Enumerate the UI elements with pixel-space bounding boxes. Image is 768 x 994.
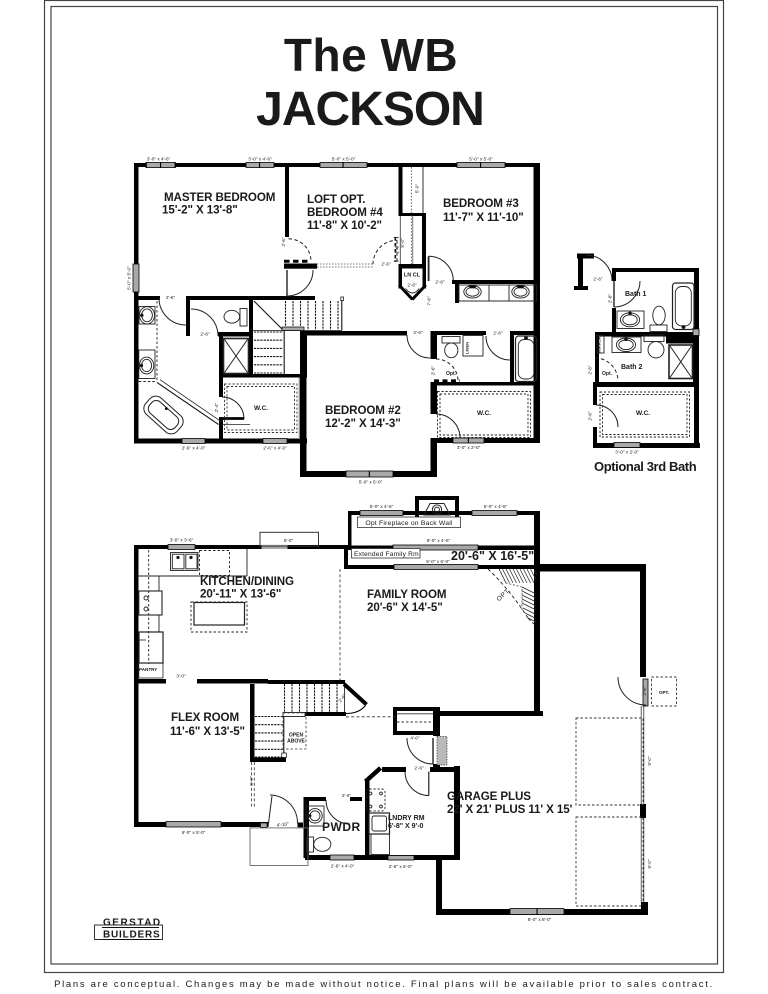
svg-text:20'-6" X 16'-5": 20'-6" X 16'-5" <box>451 549 534 563</box>
svg-text:BEDROOM #3: BEDROOM #3 <box>443 197 519 210</box>
svg-text:6'-0" x 5'-0": 6'-0" x 5'-0" <box>182 830 206 835</box>
svg-text:2'-6": 2'-6" <box>381 262 391 267</box>
svg-text:3'-0" x 4'-6": 3'-0" x 4'-6" <box>147 157 171 162</box>
svg-text:Bath 1: Bath 1 <box>625 291 647 298</box>
svg-text:2'-6": 2'-6" <box>493 331 503 336</box>
svg-text:2'-6": 2'-6" <box>281 237 286 247</box>
svg-text:5'-0" x 4'-6": 5'-0" x 4'-6" <box>484 504 508 509</box>
svg-text:3'-0": 3'-0" <box>176 674 186 679</box>
svg-text:20'-6" X 14'-5": 20'-6" X 14'-5" <box>367 601 443 614</box>
svg-text:3'-0" x 2'-0": 3'-0" x 2'-0" <box>457 445 481 450</box>
svg-text:5'-0" x 4'-6": 5'-0" x 4'-6" <box>370 504 394 509</box>
svg-text:2'-6": 2'-6" <box>413 330 423 335</box>
svg-text:2'-6": 2'-6" <box>407 283 417 288</box>
svg-text:KITCHEN/DINING: KITCHEN/DINING <box>200 575 294 588</box>
svg-text:2'-6": 2'-6" <box>395 244 400 254</box>
svg-text:2'-6" x 4'-0": 2'-6" x 4'-0" <box>263 446 287 451</box>
svg-text:11'-6" X 13'-5": 11'-6" X 13'-5" <box>170 725 245 738</box>
svg-text:Optional 3rd Bath: Optional 3rd Bath <box>594 459 697 474</box>
svg-text:2'-6": 2'-6" <box>342 793 352 798</box>
svg-text:5'-0" x 6'-0": 5'-0" x 6'-0" <box>426 559 450 564</box>
svg-text:5'-0" x 5'-0": 5'-0" x 5'-0" <box>127 266 132 290</box>
svg-text:PWDR: PWDR <box>322 820 361 834</box>
svg-text:BUILDERS: BUILDERS <box>103 930 161 941</box>
svg-text:2'-6" x 4'-0": 2'-6" x 4'-0" <box>182 446 206 451</box>
svg-text:OPT.: OPT. <box>659 690 669 695</box>
svg-text:11'-8" X 10'-2": 11'-8" X 10'-2" <box>307 219 382 232</box>
svg-text:3'-0" x 2'-0": 3'-0" x 2'-0" <box>615 450 639 455</box>
svg-text:Opt Fireplace on Back Wall: Opt Fireplace on Back Wall <box>365 520 453 527</box>
svg-text:FLEX ROOM: FLEX ROOM <box>171 711 239 724</box>
svg-text:2'-6": 2'-6" <box>431 366 436 376</box>
svg-text:LNDRY RM: LNDRY RM <box>388 815 425 822</box>
svg-text:LINEN: LINEN <box>465 342 470 354</box>
svg-text:11'-7" X 11'-10": 11'-7" X 11'-10" <box>443 211 524 224</box>
svg-text:5'-0": 5'-0" <box>400 238 405 248</box>
svg-text:MIRROR: MIRROR <box>597 336 602 352</box>
svg-text:8'-0" x 8'-0": 8'-0" x 8'-0" <box>528 917 552 922</box>
svg-text:5'-0" x 5'-0": 5'-0" x 5'-0" <box>469 157 493 162</box>
svg-text:W.C.: W.C. <box>636 410 650 417</box>
svg-text:MASTER BEDROOM: MASTER BEDROOM <box>164 191 275 204</box>
svg-text:5'-0": 5'-0" <box>249 776 254 786</box>
svg-text:2'-6": 2'-6" <box>642 686 647 696</box>
svg-text:JACKSON: JACKSON <box>256 83 484 136</box>
svg-text:2'-6": 2'-6" <box>435 280 445 285</box>
svg-text:2'-6" x 6'-0": 2'-6" x 6'-0" <box>389 864 413 869</box>
svg-text:5'-0" x 5'-0": 5'-0" x 5'-0" <box>359 480 383 485</box>
svg-text:GARAGE PLUS: GARAGE PLUS <box>447 790 531 803</box>
svg-text:6'-8" X 9'-0: 6'-8" X 9'-0 <box>388 823 424 830</box>
svg-text:15'-2" X 13'-8": 15'-2" X 13'-8" <box>162 204 238 217</box>
svg-text:2'-6": 2'-6" <box>414 766 424 771</box>
svg-text:20'-11" X 13'-6": 20'-11" X 13'-6" <box>200 588 281 601</box>
svg-text:9'-0": 9'-0" <box>647 756 652 766</box>
svg-text:2'-6": 2'-6" <box>588 365 593 375</box>
svg-text:5'-0": 5'-0" <box>415 184 420 194</box>
svg-text:BEDROOM #4: BEDROOM #4 <box>307 206 383 219</box>
svg-text:2'-6": 2'-6" <box>588 411 593 421</box>
svg-text:GERSTAD: GERSTAD <box>103 918 162 929</box>
svg-text:PANTRY: PANTRY <box>139 667 157 672</box>
svg-text:4'-0": 4'-0" <box>410 736 420 741</box>
svg-text:8'-0" x 4'-6": 8'-0" x 4'-6" <box>427 538 451 543</box>
svg-text:Plans are conceptual. Changes: Plans are conceptual. Changes may be mad… <box>54 979 714 990</box>
svg-text:BEDROOM #2: BEDROOM #2 <box>325 404 401 417</box>
svg-text:Opt.: Opt. <box>446 371 457 377</box>
svg-text:5'-0" x 5'-0": 5'-0" x 5'-0" <box>332 157 356 162</box>
svg-text:LN CL: LN CL <box>404 273 421 279</box>
svg-text:The WB: The WB <box>284 29 458 81</box>
svg-text:W.C.: W.C. <box>477 410 491 417</box>
svg-text:2'-6": 2'-6" <box>200 332 210 337</box>
svg-text:9'-0": 9'-0" <box>647 859 652 869</box>
svg-text:Opt.: Opt. <box>602 371 613 377</box>
svg-text:22' X 21' PLUS 11' X 15': 22' X 21' PLUS 11' X 15' <box>447 803 573 816</box>
svg-text:ABOVE: ABOVE <box>287 739 305 745</box>
svg-text:12'-2" X 14'-3": 12'-2" X 14'-3" <box>325 417 401 430</box>
svg-text:7'-6": 7'-6" <box>427 296 432 306</box>
svg-text:2'-6": 2'-6" <box>166 295 176 300</box>
svg-text:2'-6" x 4'-0": 2'-6" x 4'-0" <box>331 864 355 869</box>
svg-text:LOFT OPT.: LOFT OPT. <box>307 193 365 206</box>
svg-text:2'-4": 2'-4" <box>214 403 219 413</box>
svg-text:2'-6": 2'-6" <box>608 294 613 304</box>
svg-text:Extended Family Rm: Extended Family Rm <box>354 551 419 558</box>
svg-text:3'-0" x 4'-6": 3'-0" x 4'-6" <box>248 157 272 162</box>
svg-text:2'-6": 2'-6" <box>593 277 603 282</box>
svg-text:W.C.: W.C. <box>254 405 268 412</box>
svg-text:3'-0" x 3'-6": 3'-0" x 3'-6" <box>170 538 194 543</box>
svg-text:6'-0": 6'-0" <box>284 538 294 543</box>
svg-text:Bath 2: Bath 2 <box>621 364 643 371</box>
svg-text:FAMILY ROOM: FAMILY ROOM <box>367 588 446 601</box>
